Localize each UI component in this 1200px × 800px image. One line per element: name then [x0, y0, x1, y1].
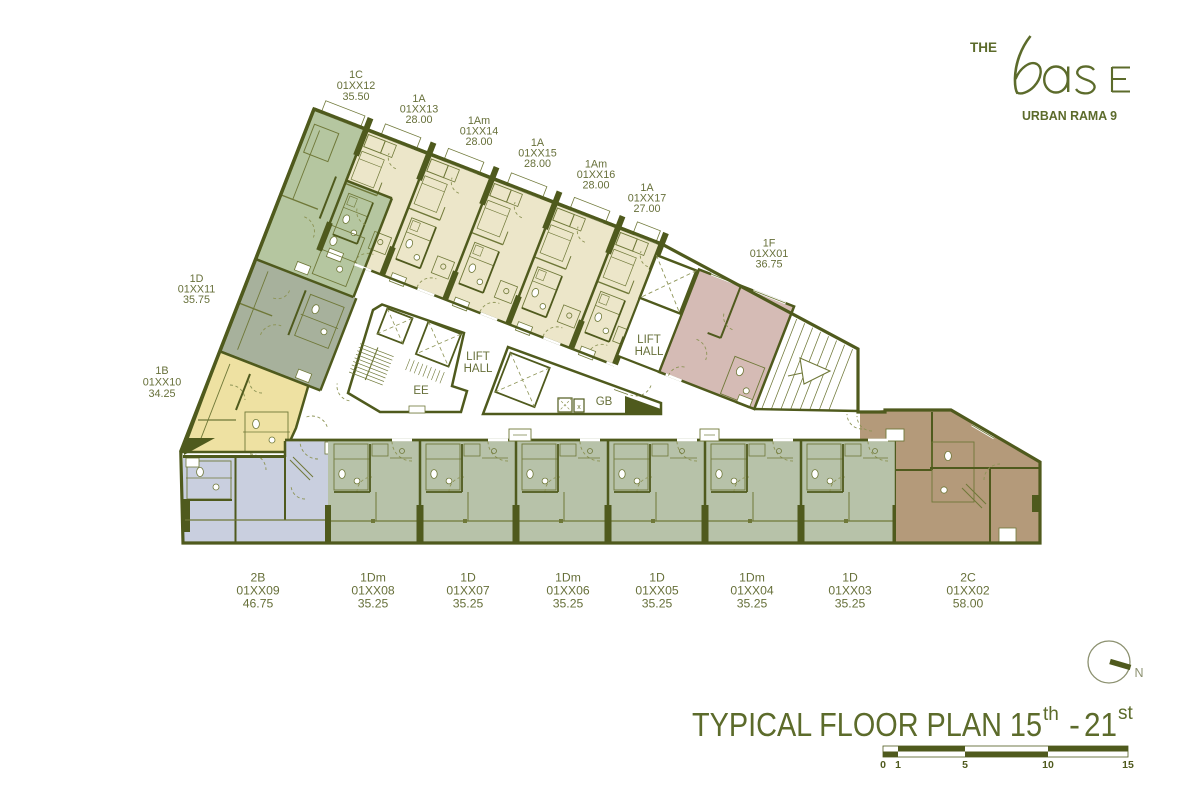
svg-text:01XX06: 01XX06 [546, 584, 590, 598]
svg-text:GB: GB [596, 396, 613, 408]
svg-text:01XX10: 01XX10 [143, 377, 181, 389]
svg-text:35.75: 35.75 [183, 294, 210, 306]
svg-text:15: 15 [1122, 759, 1134, 771]
svg-text:st: st [1118, 703, 1134, 724]
svg-text:1B: 1B [155, 365, 168, 377]
svg-text:1D: 1D [842, 571, 858, 585]
svg-text:LIFT: LIFT [637, 334, 661, 346]
svg-text:TYPICAL FLOOR PLAN 15: TYPICAL FLOOR PLAN 15 [692, 706, 1042, 743]
svg-text:10: 10 [1042, 759, 1054, 771]
svg-text:5: 5 [962, 759, 968, 771]
svg-text:th: th [1043, 704, 1059, 725]
svg-text:01XX02: 01XX02 [946, 584, 990, 598]
svg-text:URBAN RAMA 9: URBAN RAMA 9 [1022, 108, 1117, 123]
svg-text:21: 21 [1084, 706, 1117, 743]
svg-text:HALL: HALL [635, 346, 664, 358]
svg-text:1Dm: 1Dm [555, 571, 581, 585]
svg-text:0: 0 [880, 759, 886, 771]
svg-text:2C: 2C [960, 571, 976, 585]
svg-text:01XX09: 01XX09 [236, 584, 280, 598]
svg-text:34.25: 34.25 [148, 388, 175, 400]
svg-text:-: - [1069, 706, 1080, 743]
svg-text:LIFT: LIFT [466, 351, 490, 363]
svg-text:35.25: 35.25 [737, 597, 768, 611]
svg-text:01XX04: 01XX04 [730, 584, 774, 598]
svg-text:HALL: HALL [464, 363, 493, 375]
svg-text:01XX03: 01XX03 [828, 584, 872, 598]
svg-text:28.00: 28.00 [465, 136, 492, 148]
svg-text:35.25: 35.25 [642, 597, 673, 611]
svg-text:28.00: 28.00 [582, 180, 609, 192]
svg-text:28.00: 28.00 [524, 158, 551, 170]
svg-text:THE: THE [970, 39, 997, 55]
svg-text:35.25: 35.25 [835, 597, 866, 611]
svg-text:27.00: 27.00 [633, 203, 660, 215]
svg-text:58.00: 58.00 [953, 597, 984, 611]
svg-text:35.25: 35.25 [453, 597, 484, 611]
svg-text:EE: EE [413, 385, 429, 397]
svg-text:35.25: 35.25 [358, 597, 389, 611]
svg-text:1D: 1D [460, 571, 476, 585]
svg-text:1: 1 [895, 759, 901, 771]
svg-text:35.25: 35.25 [553, 597, 584, 611]
svg-text:28.00: 28.00 [405, 114, 432, 126]
svg-text:1Dm: 1Dm [360, 571, 386, 585]
svg-text:N: N [1134, 666, 1143, 680]
svg-text:01XX05: 01XX05 [635, 584, 679, 598]
svg-text:01XX08: 01XX08 [351, 584, 395, 598]
svg-text:2B: 2B [251, 571, 266, 585]
svg-text:35.50: 35.50 [342, 91, 369, 103]
svg-text:1D: 1D [649, 571, 665, 585]
svg-text:46.75: 46.75 [243, 597, 274, 611]
svg-text:x: x [577, 404, 581, 411]
svg-text:1Dm: 1Dm [739, 571, 765, 585]
svg-text:36.75: 36.75 [755, 259, 782, 271]
svg-text:01XX07: 01XX07 [446, 584, 490, 598]
